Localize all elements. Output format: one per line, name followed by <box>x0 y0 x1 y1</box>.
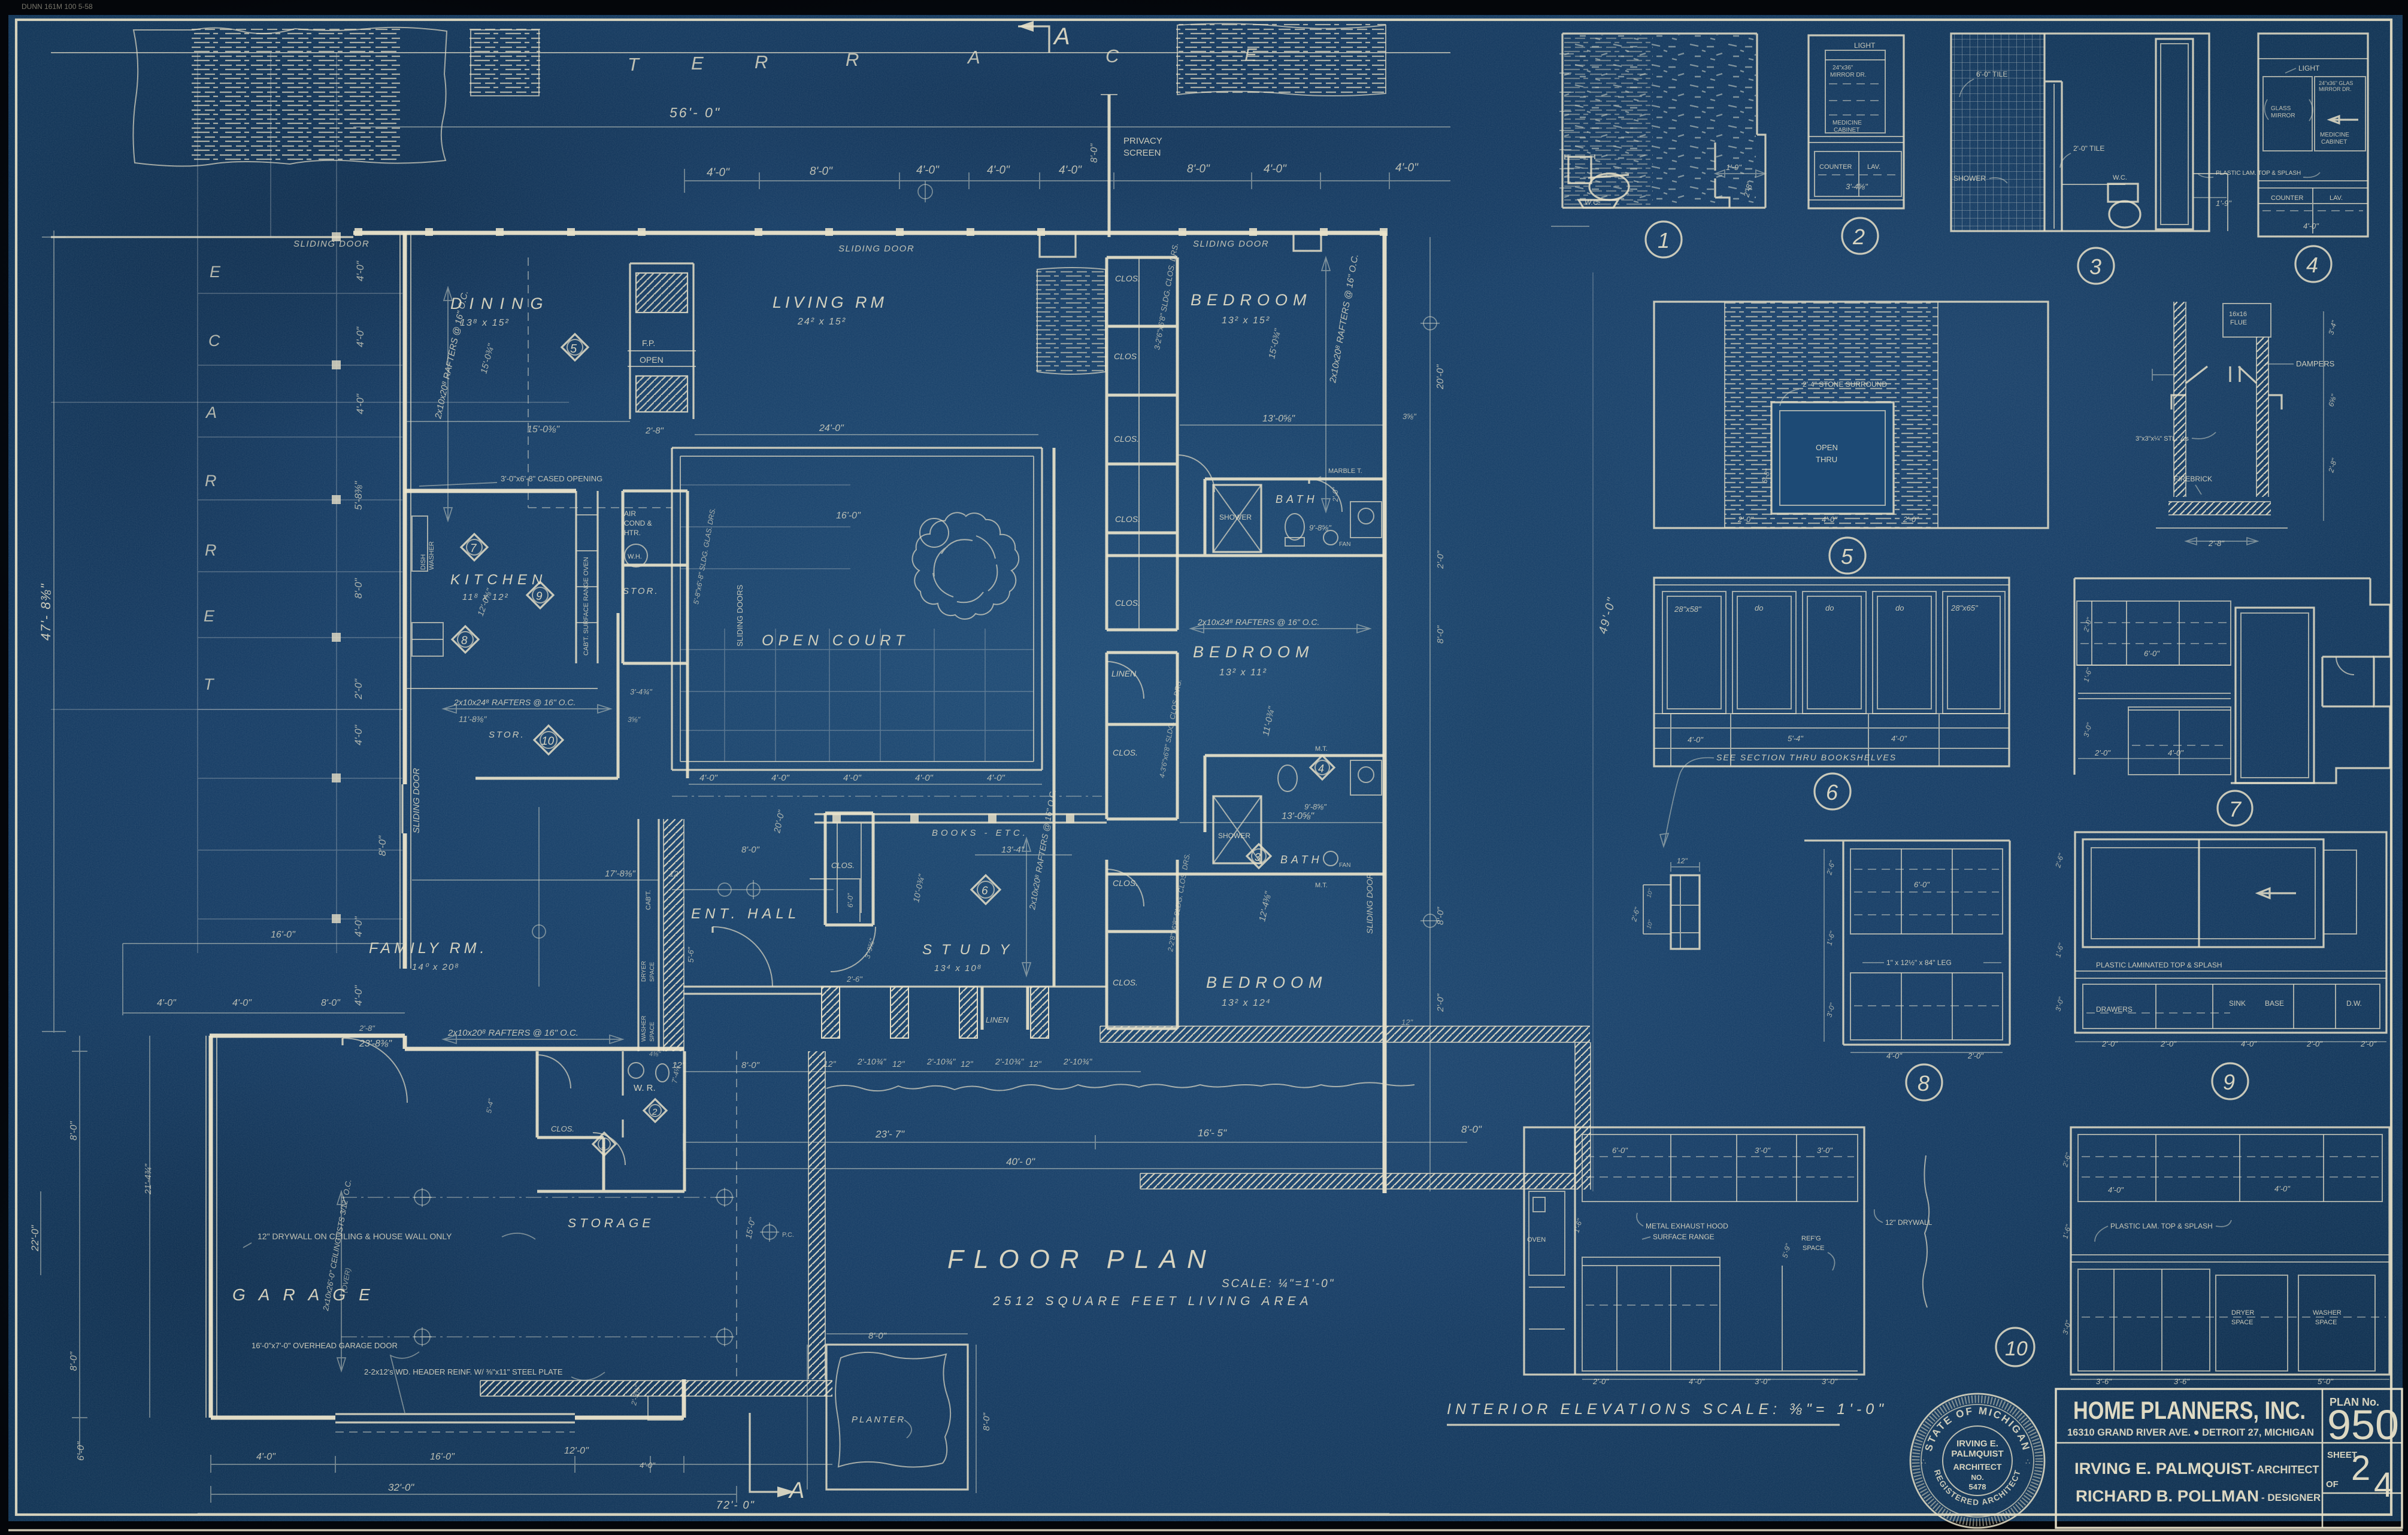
svg-text:4'-0": 4'-0" <box>707 166 730 179</box>
svg-text:3: 3 <box>2089 254 2101 279</box>
svg-text:CLOS.: CLOS. <box>1113 878 1138 888</box>
svg-text:5478: 5478 <box>1969 1482 1986 1491</box>
svg-text:LAV.: LAV. <box>1867 163 1880 171</box>
svg-text:22'-0": 22'-0" <box>29 1225 41 1252</box>
svg-text:17'-8⅜": 17'-8⅜" <box>605 869 635 879</box>
svg-text:MARBLE T.: MARBLE T. <box>1328 468 1362 475</box>
svg-text:CLOS.: CLOS. <box>1115 274 1140 283</box>
svg-text:1'-9": 1'-9" <box>1726 163 1742 172</box>
svg-text:∴: ∴ <box>2025 1457 2030 1466</box>
svg-text:24'-0": 24'-0" <box>819 423 844 433</box>
svg-text:2512 SQUARE FEET LIVING AREA: 2512 SQUARE FEET LIVING AREA <box>992 1294 1313 1308</box>
svg-text:KITCHEN: KITCHEN <box>450 572 547 588</box>
svg-text:6: 6 <box>1826 780 1838 805</box>
svg-text:4'-0": 4'-0" <box>1264 163 1287 175</box>
svg-text:CLOS.: CLOS. <box>1114 434 1139 444</box>
svg-text:C: C <box>1105 45 1119 66</box>
svg-text:BEDROOM: BEDROOM <box>1193 643 1314 661</box>
svg-text:W. R.: W. R. <box>634 1083 656 1093</box>
svg-text:24"x36": 24"x36" <box>1832 65 1853 71</box>
svg-text:28"x58": 28"x58" <box>1674 605 1702 614</box>
svg-text:5'-8⅜": 5'-8⅜" <box>353 481 364 510</box>
svg-text:RICHARD B. POLLMAN: RICHARD B. POLLMAN <box>2076 1487 2259 1505</box>
svg-text:A: A <box>1053 23 1070 50</box>
svg-text:CLOS.: CLOS. <box>1115 514 1140 524</box>
svg-text:W.H.: W.H. <box>628 553 642 560</box>
svg-text:4'-0": 4'-0" <box>353 724 364 745</box>
svg-text:3"x3"x¼" STL. ∠s: 3"x3"x¼" STL. ∠s <box>2136 435 2189 442</box>
svg-text:A: A <box>205 404 217 421</box>
svg-text:CLOS: CLOS <box>1114 351 1137 361</box>
svg-text:C: C <box>208 332 220 350</box>
svg-text:11'-8⅜": 11'-8⅜" <box>459 714 487 724</box>
svg-text:SHOWER: SHOWER <box>1953 174 1986 183</box>
svg-text:GLASS: GLASS <box>2271 105 2291 112</box>
svg-text:16'-0": 16'-0" <box>430 1452 455 1462</box>
svg-text:COUNTER: COUNTER <box>2271 195 2303 202</box>
svg-text:4'-0": 4'-0" <box>916 164 940 177</box>
svg-text:950: 950 <box>2327 1401 2399 1448</box>
svg-text:5'-0": 5'-0" <box>2318 1377 2334 1386</box>
svg-text:2'-0": 2'-0" <box>1331 487 1340 502</box>
svg-text:16'-0"x7'-0" OVERHEAD GARAGE D: 16'-0"x7'-0" OVERHEAD GARAGE DOOR <box>252 1341 398 1350</box>
svg-text:4: 4 <box>2374 1466 2393 1504</box>
svg-text:E: E <box>210 263 221 281</box>
svg-text:2: 2 <box>2351 1449 2370 1488</box>
svg-text:CLOS.: CLOS. <box>1115 598 1140 608</box>
svg-text:WASHER: WASHER <box>2313 1309 2342 1316</box>
svg-text:12": 12" <box>961 1059 974 1069</box>
svg-text:2x10x24⁸ RAFTERS @ 16" O.C.: 2x10x24⁸ RAFTERS @ 16" O.C. <box>1197 617 1319 627</box>
svg-text:8'-0": 8'-0" <box>377 835 388 856</box>
svg-text:8'-0": 8'-0" <box>1461 1124 1482 1135</box>
svg-text:SINK: SINK <box>2229 999 2246 1008</box>
svg-text:M.T.: M.T. <box>1315 745 1328 753</box>
svg-text:9'-8⅝": 9'-8⅝" <box>1309 523 1332 532</box>
svg-text:4: 4 <box>2306 253 2318 277</box>
svg-text:STOR.: STOR. <box>489 730 525 740</box>
svg-text:2'-10¾": 2'-10¾" <box>995 1057 1024 1066</box>
svg-text:4'-0": 4'-0" <box>1822 515 1838 524</box>
svg-text:9'-8⅝": 9'-8⅝" <box>1304 802 1327 811</box>
svg-text:2'-4" STONE SURROUND: 2'-4" STONE SURROUND <box>1803 380 1887 389</box>
svg-text:E: E <box>691 53 704 74</box>
svg-text:ARCHITECT: ARCHITECT <box>1953 1462 2002 1472</box>
svg-text:23'- 7": 23'- 7" <box>875 1129 905 1140</box>
svg-text:SLIDING DOORS: SLIDING DOORS <box>735 584 744 647</box>
svg-text:4'-0": 4'-0" <box>1059 164 1082 177</box>
svg-text:16'-0": 16'-0" <box>836 511 861 521</box>
svg-text:5'-6": 5'-6" <box>686 947 695 963</box>
svg-text:F.P.: F.P. <box>642 338 655 348</box>
svg-text:4'-0": 4'-0" <box>353 985 364 1006</box>
svg-text:THRU: THRU <box>1816 455 1837 464</box>
svg-text:2'-8": 2'-8" <box>2208 539 2225 548</box>
svg-text:10: 10 <box>2005 1337 2028 1360</box>
svg-text:9: 9 <box>536 590 543 603</box>
svg-text:2'-0": 2'-0" <box>353 678 364 700</box>
svg-text:do: do <box>1895 603 1904 612</box>
svg-text:P.C.: P.C. <box>782 1231 794 1239</box>
svg-text:CABINET: CABINET <box>2321 139 2347 145</box>
svg-text:M.T.: M.T. <box>1315 882 1328 889</box>
svg-text:LAV.: LAV. <box>2330 195 2343 202</box>
svg-text:4'-0": 4'-0" <box>771 773 790 783</box>
svg-text:2'-8": 2'-8" <box>645 426 664 436</box>
svg-text:8'-0": 8'-0" <box>741 845 760 855</box>
svg-text:21'-4¾": 21'-4¾" <box>143 1164 153 1195</box>
svg-text:2: 2 <box>652 1107 658 1117</box>
svg-text:3'-0": 3'-0" <box>1822 1377 1838 1386</box>
svg-text:4: 4 <box>1318 763 1324 775</box>
svg-text:ENT. HALL: ENT. HALL <box>691 906 800 922</box>
svg-text:LINEN: LINEN <box>986 1015 1009 1024</box>
svg-text:3'-0": 3'-0" <box>1755 1146 1771 1155</box>
svg-text:A: A <box>788 1478 804 1503</box>
svg-text:PLASTIC LAM. TOP & SPLASH: PLASTIC LAM. TOP & SPLASH <box>2110 1222 2213 1230</box>
svg-text:8: 8 <box>461 635 468 647</box>
svg-text:47'- 8⅜": 47'- 8⅜" <box>38 583 53 641</box>
svg-text:16310 GRAND RIVER AVE. ● DET: 16310 GRAND RIVER AVE. ● DETROIT 27, MIC… <box>2067 1427 2314 1438</box>
svg-text:2'-0": 2'-0" <box>1435 993 1446 1012</box>
svg-text:MEDICINE: MEDICINE <box>1832 120 1862 126</box>
svg-text:2x10x20⁸ RAFTERS @ 16" O.C.: 2x10x20⁸ RAFTERS @ 16" O.C. <box>447 1028 578 1038</box>
svg-text:SHOWER: SHOWER <box>1219 513 1252 521</box>
svg-text:4'-0": 4'-0" <box>1689 1377 1705 1386</box>
svg-text:3'-0": 3'-0" <box>1817 1146 1833 1155</box>
svg-text:2'-0": 2'-0" <box>2306 1039 2323 1048</box>
svg-text:3'-4⅝": 3'-4⅝" <box>1846 182 1868 191</box>
svg-text:12" DRYWALL ON CEILING & HOUSE: 12" DRYWALL ON CEILING & HOUSE WALL ONLY <box>258 1231 452 1241</box>
svg-text:8'-0": 8'-0" <box>69 1351 79 1371</box>
svg-text:20'-0": 20'-0" <box>1435 364 1446 390</box>
svg-text:6'-0": 6'-0" <box>1612 1146 1628 1155</box>
svg-text:4'-0": 4'-0" <box>355 393 366 414</box>
svg-text:OVEN: OVEN <box>1527 1236 1546 1243</box>
svg-text:R: R <box>846 49 859 70</box>
svg-text:16x16: 16x16 <box>2229 311 2247 318</box>
svg-text:14⁰ x 20⁸: 14⁰ x 20⁸ <box>412 962 460 972</box>
svg-text:BOOKS - ETC.: BOOKS - ETC. <box>932 828 1028 838</box>
svg-text:SLIDING DOOR: SLIDING DOOR <box>293 239 369 249</box>
svg-text:4'-0": 4'-0" <box>2168 748 2184 757</box>
svg-text:2'-0": 2'-0" <box>2360 1039 2377 1048</box>
svg-text:R: R <box>205 472 217 490</box>
svg-text:MIRROR DR.: MIRROR DR. <box>2319 86 2352 92</box>
svg-text:SLIDING DOOR: SLIDING DOOR <box>1193 239 1269 249</box>
svg-text:8'-0": 8'-0" <box>321 998 341 1008</box>
svg-text:CAB'T.: CAB'T. <box>645 890 652 910</box>
svg-text:2: 2 <box>1852 225 1865 249</box>
svg-text:9: 9 <box>2223 1070 2235 1094</box>
svg-text:4⅜": 4⅜" <box>649 1051 661 1058</box>
svg-text:PLANTER: PLANTER <box>852 1415 905 1425</box>
svg-text:do: do <box>1825 603 1834 612</box>
svg-text:D.W.: D.W. <box>2346 999 2362 1008</box>
svg-text:12'-0": 12'-0" <box>564 1446 589 1456</box>
svg-text:24"x36" GLAS: 24"x36" GLAS <box>2319 80 2353 86</box>
svg-text:FIREBRICK: FIREBRICK <box>2174 475 2212 483</box>
svg-text:BASE: BASE <box>2265 999 2284 1008</box>
svg-text:28"x65": 28"x65" <box>1950 603 1979 612</box>
svg-text:5'-4": 5'-4" <box>1788 734 1804 743</box>
svg-text:DAMPERS: DAMPERS <box>2296 359 2335 368</box>
svg-text:CLOS.: CLOS. <box>1113 748 1138 757</box>
svg-text:SPACE: SPACE <box>649 1022 656 1042</box>
svg-text:E: E <box>204 607 215 625</box>
svg-text:W.C.: W.C. <box>2113 174 2127 181</box>
svg-text:FLOOR PLAN: FLOOR PLAN <box>947 1245 1216 1274</box>
svg-text:CLOS.: CLOS. <box>831 861 855 870</box>
svg-text:BEDROOM: BEDROOM <box>1191 291 1312 309</box>
svg-text:3'-6": 3'-6" <box>2174 1377 2190 1386</box>
svg-text:4'-0": 4'-0" <box>256 1452 276 1462</box>
svg-text:13⁴ x 10⁸: 13⁴ x 10⁸ <box>934 963 982 973</box>
svg-text:R: R <box>205 541 217 559</box>
svg-text:4'-0": 4'-0" <box>232 998 252 1008</box>
svg-text:CLOS.: CLOS. <box>1113 978 1138 987</box>
svg-text:5: 5 <box>570 342 577 356</box>
svg-text:- ARCHITECT: - ARCHITECT <box>2251 1464 2319 1476</box>
svg-text:8'-0": 8'-0" <box>69 1121 79 1140</box>
svg-text:15'-0⅜": 15'-0⅜" <box>527 424 560 435</box>
svg-text:NO.: NO. <box>1971 1473 1983 1482</box>
svg-text:HTR.: HTR. <box>624 529 641 537</box>
svg-text:4'-0": 4'-0" <box>2274 1184 2291 1193</box>
svg-text:SHOWER: SHOWER <box>1218 832 1250 840</box>
svg-text:MIRROR DR.: MIRROR DR. <box>1830 72 1867 78</box>
svg-text:COND &: COND & <box>624 519 652 527</box>
svg-text:7: 7 <box>470 542 477 555</box>
svg-text:- DESIGNER: - DESIGNER <box>2261 1492 2321 1503</box>
svg-text:2'-0": 2'-0" <box>1592 1377 1609 1386</box>
svg-text:24² x 15²: 24² x 15² <box>797 317 846 327</box>
svg-text:6'-0": 6'-0" <box>1914 880 1930 889</box>
svg-text:4'-0": 4'-0" <box>157 998 177 1008</box>
svg-text:2'-0": 2'-0" <box>2160 1039 2177 1048</box>
svg-text:T: T <box>204 675 215 693</box>
svg-text:PLASTIC LAM. TOP & SPLASH: PLASTIC LAM. TOP & SPLASH <box>2216 170 2301 177</box>
svg-text:3⅝": 3⅝" <box>628 715 641 724</box>
svg-text:1: 1 <box>1658 228 1670 253</box>
svg-text:STUDY: STUDY <box>922 942 1019 958</box>
svg-text:CLOS.: CLOS. <box>551 1124 574 1133</box>
svg-text:2'-0": 2'-0" <box>1737 515 1754 524</box>
svg-text:3'-0": 3'-0" <box>1755 1377 1771 1386</box>
svg-text:∴: ∴ <box>1921 1457 1926 1466</box>
svg-text:3⅝": 3⅝" <box>1403 412 1417 421</box>
svg-text:2'-0": 2'-0" <box>1435 550 1446 569</box>
svg-text:2'-0": 2'-0" <box>2101 1039 2118 1048</box>
svg-text:6'-0" TILE: 6'-0" TILE <box>1976 70 2007 78</box>
svg-text:2'-0": 2'-0" <box>2094 748 2111 757</box>
svg-text:13² x 12⁴: 13² x 12⁴ <box>1222 998 1271 1008</box>
svg-text:DRYER: DRYER <box>2231 1309 2254 1316</box>
svg-text:13'-0⅝": 13'-0⅝" <box>1282 811 1314 821</box>
svg-text:OF: OF <box>2326 1479 2339 1490</box>
svg-text:AIR: AIR <box>624 509 636 518</box>
svg-text:4'-0": 4'-0" <box>2241 1039 2257 1048</box>
svg-text:INTERIOR ELEVATIONS SCALE:: INTERIOR ELEVATIONS SCALE: ⅜"= 1'-0" <box>1447 1401 1888 1418</box>
svg-text:3: 3 <box>1255 851 1261 863</box>
svg-text:SCALE: ¼"=1'-0": SCALE: ¼"=1'-0" <box>1222 1278 1335 1290</box>
svg-text:STORAGE: STORAGE <box>568 1217 654 1230</box>
svg-text:CAB'T. SURFACE RANGE OVEN: CAB'T. SURFACE RANGE OVEN <box>583 557 590 656</box>
svg-text:A: A <box>967 47 980 68</box>
svg-text:FAN: FAN <box>1339 862 1350 869</box>
svg-text:16'- 5": 16'- 5" <box>1198 1127 1227 1139</box>
svg-text:METAL EXHAUST HOOD: METAL EXHAUST HOOD <box>1646 1222 1728 1230</box>
svg-text:MEDICINE: MEDICINE <box>2320 132 2349 138</box>
svg-text:SURFACE RANGE: SURFACE RANGE <box>1653 1233 1715 1241</box>
svg-text:LINEN: LINEN <box>1111 669 1137 678</box>
svg-text:SPACE: SPACE <box>2315 1319 2337 1326</box>
svg-text:SLIDING DOOR: SLIDING DOOR <box>411 768 422 833</box>
svg-text:DUNN 161M 100 5-58: DUNN 161M 100 5-58 <box>22 2 93 11</box>
svg-text:12": 12" <box>1677 857 1688 865</box>
svg-text:DRAWERS: DRAWERS <box>2096 1005 2133 1014</box>
svg-text:BATH: BATH <box>1276 493 1318 505</box>
svg-text:40'- 0": 40'- 0" <box>1006 1156 1035 1167</box>
svg-text:72'- 0": 72'- 0" <box>716 1499 755 1511</box>
svg-text:12": 12" <box>672 1060 686 1070</box>
svg-text:IRVING E. PALMQUIST: IRVING E. PALMQUIST <box>2074 1460 2252 1478</box>
svg-text:2'-10¾": 2'-10¾" <box>1063 1057 1092 1066</box>
svg-text:SPACE: SPACE <box>2231 1319 2253 1326</box>
svg-text:13⁸ x 15²: 13⁸ x 15² <box>460 318 510 328</box>
svg-text:2'-8": 2'-8" <box>359 1024 375 1033</box>
svg-text:HOME PLANNERS, INC.: HOME PLANNERS, INC. <box>2073 1396 2306 1424</box>
svg-text:8'-0": 8'-0" <box>1435 625 1446 644</box>
svg-text:13² x 15²: 13² x 15² <box>1222 316 1270 326</box>
svg-text:13'-4": 13'-4" <box>1001 845 1025 855</box>
svg-text:3'-6": 3'-6" <box>2096 1377 2112 1386</box>
svg-text:1'-9": 1'-9" <box>2216 199 2232 208</box>
svg-text:4'-0": 4'-0" <box>1395 162 1419 174</box>
svg-text:FLUE: FLUE <box>2230 319 2247 326</box>
svg-text:4'-0": 4'-0" <box>1688 735 1704 744</box>
svg-text:6'-0": 6'-0" <box>2144 649 2160 658</box>
svg-text:4'-0": 4'-0" <box>843 773 862 783</box>
svg-text:13'-0⅝": 13'-0⅝" <box>1262 414 1295 424</box>
svg-text:SEE SECTION THRU BOOKSHELVES: SEE SECTION THRU BOOKSHELVES <box>1716 753 1897 762</box>
svg-text:8'-0": 8'-0" <box>868 1331 887 1341</box>
svg-text:8: 8 <box>1918 1071 1930 1096</box>
svg-text:56'- 0": 56'- 0" <box>670 105 721 120</box>
svg-text:6'-0": 6'-0" <box>76 1441 86 1461</box>
svg-text:4'-0": 4'-0" <box>2303 222 2319 230</box>
svg-text:LIVING RM: LIVING RM <box>773 293 888 311</box>
svg-text:4'-0": 4'-0" <box>987 164 1010 177</box>
svg-text:MIRROR: MIRROR <box>2271 113 2295 119</box>
svg-text:SPACE: SPACE <box>649 962 656 982</box>
svg-text:4'-0": 4'-0" <box>699 773 718 783</box>
svg-text:T: T <box>628 54 640 75</box>
svg-text:R: R <box>755 51 768 72</box>
svg-text:23'-8⅜": 23'-8⅜" <box>359 1039 392 1049</box>
svg-text:DISH: DISH <box>420 554 427 570</box>
svg-text:8'-0": 8'-0" <box>810 165 833 178</box>
svg-text:4'-0": 4'-0" <box>987 773 1005 783</box>
svg-text:12" DRYWALL: 12" DRYWALL <box>1885 1218 1933 1227</box>
svg-text:FAN: FAN <box>1339 541 1350 548</box>
svg-text:8'-0": 8'-0" <box>1187 163 1210 175</box>
svg-text:8'-0": 8'-0" <box>982 1412 992 1431</box>
svg-text:LIGHT: LIGHT <box>1854 41 1876 50</box>
svg-text:32'-0": 32'-0" <box>388 1482 414 1493</box>
svg-text:16'-0": 16'-0" <box>271 930 296 940</box>
svg-text:2'-0": 2'-0" <box>1903 515 1919 524</box>
svg-text:CABINET: CABINET <box>1834 127 1859 134</box>
svg-text:2'-0" TILE: 2'-0" TILE <box>2073 144 2104 153</box>
svg-text:4'-0": 4'-0" <box>355 260 366 281</box>
svg-text:12": 12" <box>892 1059 905 1069</box>
svg-text:E: E <box>1244 44 1257 65</box>
svg-text:OPEN COURT: OPEN COURT <box>762 632 909 649</box>
svg-text:1: 1 <box>601 1140 606 1151</box>
svg-text:2'-10¾": 2'-10¾" <box>926 1057 956 1066</box>
svg-text:PALMQUIST: PALMQUIST <box>1951 1449 2003 1459</box>
svg-text:PLASTIC LAMINATED TOP & SPLASH: PLASTIC LAMINATED TOP & SPLASH <box>2096 961 2222 969</box>
svg-text:1" x 12½" x 84" LEG: 1" x 12½" x 84" LEG <box>1886 958 1952 967</box>
svg-text:13² x 11²: 13² x 11² <box>1219 668 1267 678</box>
svg-text:7: 7 <box>2229 797 2242 821</box>
svg-text:8'-0": 8'-0" <box>741 1060 760 1070</box>
svg-text:2'-6": 2'-6" <box>846 975 863 984</box>
svg-text:OPEN: OPEN <box>640 355 664 365</box>
svg-text:SPACE: SPACE <box>1803 1245 1824 1252</box>
svg-text:5: 5 <box>1841 544 1853 569</box>
svg-text:4'-0": 4'-0" <box>2108 1185 2124 1194</box>
svg-text:COUNTER: COUNTER <box>1819 163 1852 171</box>
svg-text:OPEN: OPEN <box>1816 443 1838 452</box>
svg-text:12": 12" <box>1401 1018 1413 1027</box>
svg-text:STOR.: STOR. <box>623 586 659 596</box>
svg-text:3'-0"x6'-8" CASED OPENING: 3'-0"x6'-8" CASED OPENING <box>501 474 602 483</box>
svg-text:GARAGE: GARAGE <box>232 1285 383 1304</box>
svg-text:4'-0": 4'-0" <box>1891 734 1907 743</box>
svg-text:WASHER: WASHER <box>641 1015 647 1042</box>
svg-text:WASHER: WASHER <box>428 541 435 570</box>
svg-text:SLIDING DOOR: SLIDING DOOR <box>838 244 914 254</box>
svg-text:FAMILY RM.: FAMILY RM. <box>369 940 487 957</box>
svg-text:SLIDING DOOR: SLIDING DOOR <box>1365 873 1374 934</box>
svg-text:6'-0": 6'-0" <box>846 893 855 908</box>
svg-text:3'-4¾": 3'-4¾" <box>630 687 653 696</box>
svg-text:IRVING E.: IRVING E. <box>1956 1439 1998 1449</box>
svg-text:12": 12" <box>1029 1059 1042 1069</box>
svg-text:10: 10 <box>541 735 555 748</box>
svg-text:2x10x24⁸ RAFTERS @ 16" O.C.: 2x10x24⁸ RAFTERS @ 16" O.C. <box>453 697 576 707</box>
svg-text:4'-0": 4'-0" <box>355 326 366 347</box>
svg-text:REF'G: REF'G <box>1801 1235 1821 1242</box>
svg-text:PRIVACY: PRIVACY <box>1123 136 1162 146</box>
svg-text:do: do <box>1755 603 1763 612</box>
svg-text:4'-0": 4'-0" <box>915 773 934 783</box>
svg-text:BATH: BATH <box>1280 854 1323 866</box>
svg-text:6: 6 <box>982 885 988 897</box>
svg-text:SCREEN: SCREEN <box>1123 148 1161 158</box>
svg-text:2-2x12's WD. HEADER REINF. W/: 2-2x12's WD. HEADER REINF. W/ ⅜"x11" STE… <box>364 1367 563 1376</box>
svg-text:BEDROOM: BEDROOM <box>1206 973 1328 991</box>
svg-text:W.C.: W.C. <box>1585 198 1600 207</box>
svg-text:8'-0": 8'-0" <box>353 578 364 599</box>
svg-text:2'-10¾": 2'-10¾" <box>857 1057 886 1066</box>
svg-text:DRYER: DRYER <box>641 961 647 982</box>
svg-text:LIGHT: LIGHT <box>2298 64 2320 72</box>
svg-text:8'-0": 8'-0" <box>1089 143 1099 163</box>
svg-text:4'-0": 4'-0" <box>640 1461 656 1470</box>
